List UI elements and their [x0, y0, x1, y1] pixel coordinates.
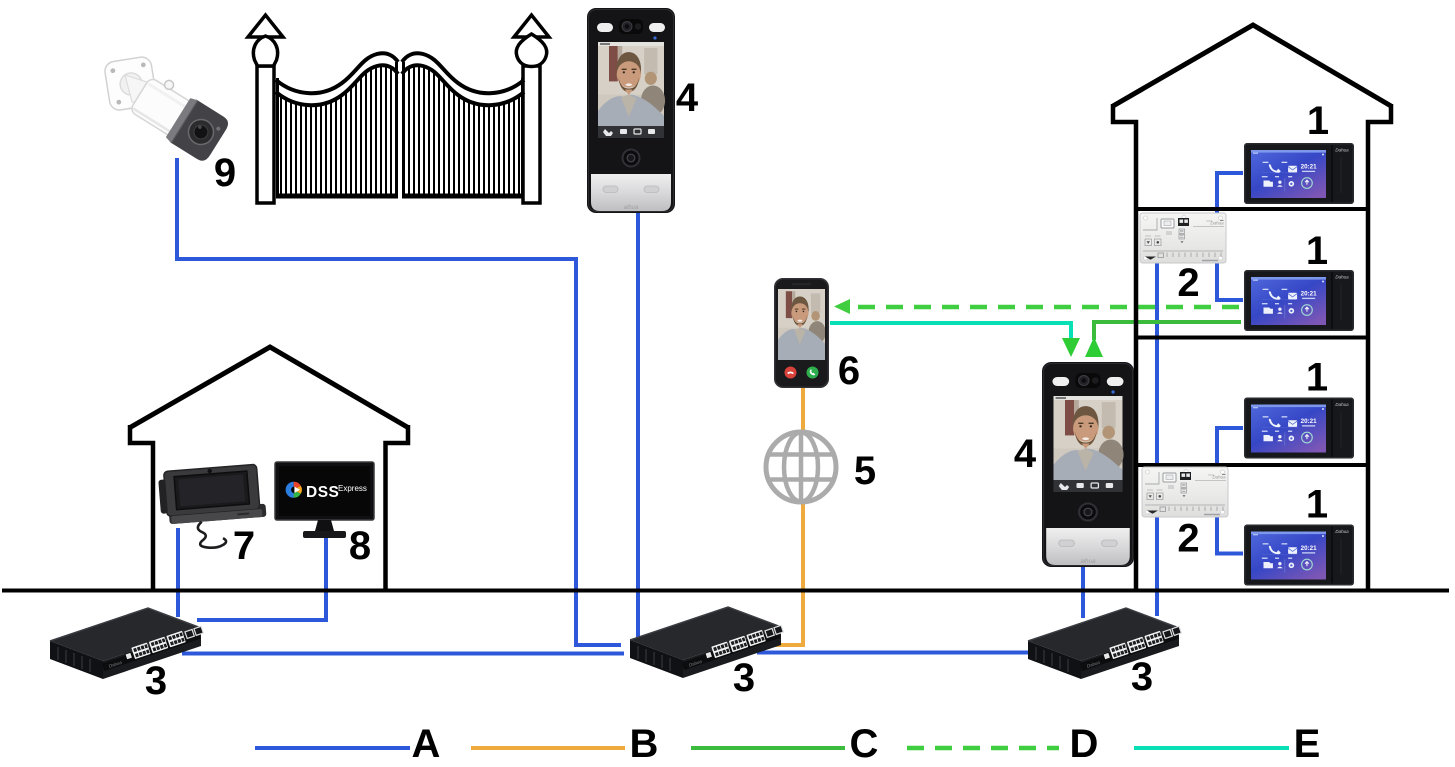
svg-text:D: D: [1070, 722, 1099, 766]
svg-text:5: 5: [854, 449, 876, 493]
svg-text:E: E: [1294, 722, 1321, 766]
svg-text:3: 3: [1131, 655, 1153, 699]
svg-text:2: 2: [1177, 261, 1199, 305]
svg-text:1: 1: [1306, 229, 1328, 273]
svg-text:9: 9: [214, 151, 236, 195]
svg-text:8: 8: [349, 524, 371, 568]
svg-text:6: 6: [838, 349, 860, 393]
svg-text:DSS: DSS: [306, 484, 339, 501]
svg-text:4: 4: [676, 76, 699, 120]
svg-text:2: 2: [1177, 517, 1199, 561]
svg-text:1: 1: [1307, 99, 1329, 143]
svg-text:1: 1: [1306, 483, 1328, 527]
svg-text:C: C: [850, 722, 879, 766]
svg-text:B: B: [630, 722, 659, 766]
svg-text:A: A: [412, 722, 441, 766]
svg-text:1: 1: [1306, 356, 1328, 400]
svg-text:4: 4: [1014, 432, 1037, 476]
svg-text:3: 3: [145, 659, 167, 703]
svg-text:7: 7: [233, 524, 255, 568]
svg-text:3: 3: [733, 656, 755, 700]
svg-text:Express: Express: [338, 484, 367, 493]
